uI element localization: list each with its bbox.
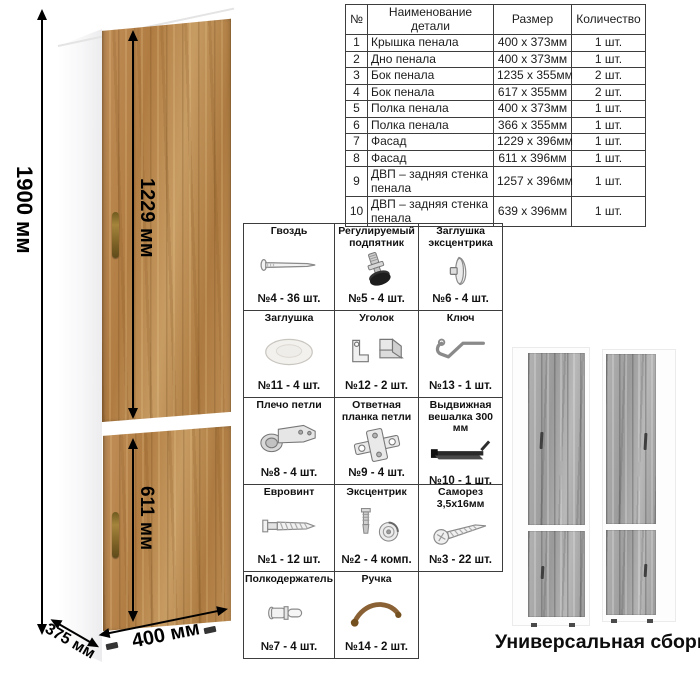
table-cell: 2 — [346, 51, 368, 68]
hardware-qty: №9 - 4 шт. — [348, 467, 404, 479]
hardware-cell-content: Выдвижная вешалка 300 мм№10 - 1 шт. — [419, 398, 502, 482]
lower-door-handle — [112, 512, 119, 558]
table-cell: Крышка пенала — [368, 35, 494, 52]
table-cell: 1 шт. — [572, 197, 646, 227]
hardware-cell-content: Ключ№13 - 1 шт. — [419, 311, 502, 395]
table-cell: 2 шт. — [572, 84, 646, 101]
hardware-title: Регулируемый подпятник — [336, 226, 417, 249]
hardware-cell: Эксцентрик№2 - 4 комп. — [335, 485, 419, 572]
hardware-row: Заглушка№11 - 4 шт.Уголок№12 - 2 шт.Ключ… — [244, 311, 503, 398]
lower-door-dimension-line — [132, 447, 134, 613]
table-cell: 1 шт. — [572, 117, 646, 134]
hardware-qty: №5 - 4 шт. — [348, 293, 404, 305]
upper-door-arrow-bottom — [128, 408, 138, 419]
table-row: 4Бок пенала617 х 355мм2 шт. — [346, 84, 646, 101]
table-cell: 6 — [346, 117, 368, 134]
hardware-title: Полкодержатель — [245, 574, 333, 586]
table-row: 8Фасад611 х 396мм1 шт. — [346, 150, 646, 167]
cam-lock-icon — [345, 499, 409, 555]
table-cell: 8 — [346, 150, 368, 167]
table-row: 3Бок пенала1235 х 355мм2 шт. — [346, 68, 646, 85]
table-cell: 1 — [346, 35, 368, 52]
mini-cabinet-foot — [569, 623, 575, 627]
upper-door-dimension-line — [132, 39, 134, 409]
hardware-cell-content: Заглушка№11 - 4 шт. — [244, 311, 334, 395]
hardware-cell: Плечо петли№8 - 4 шт. — [244, 398, 335, 485]
mini-cabinet-left — [512, 347, 590, 626]
hardware-qty: №1 - 12 шт. — [258, 554, 321, 566]
table-cell: 1235 х 355мм — [494, 68, 572, 85]
table-row: 7Фасад1229 х 396мм1 шт. — [346, 134, 646, 151]
self-tapping-screw-icon — [429, 510, 493, 554]
mini-upper-door — [528, 353, 585, 525]
table-cell: 9 — [346, 167, 368, 197]
table-cell: Полка пенала — [368, 117, 494, 134]
hardware-title: Уголок — [359, 313, 394, 325]
hardware-qty: №7 - 4 шт. — [261, 641, 317, 653]
header-number: № — [346, 5, 368, 35]
table-cell: 1 шт. — [572, 134, 646, 151]
header-quantity: Количество — [572, 5, 646, 35]
hardware-cell: Полкодержатель№7 - 4 шт. — [244, 572, 335, 659]
hardware-cell-content: Регулируемый подпятник№5 - 4 шт. — [335, 224, 418, 308]
table-cell: 1 шт. — [572, 167, 646, 197]
table-row: 5Полка пенала400 х 373мм1 шт. — [346, 101, 646, 118]
hardware-title: Выдвижная вешалка 300 мм — [420, 400, 501, 435]
hardware-cell: Ручка№14 - 2 шт. — [335, 572, 419, 659]
hardware-title: Саморез 3,5х16мм — [420, 487, 501, 510]
hardware-cell-content: Ответная планка петли№9 - 4 шт. — [335, 398, 418, 482]
hardware-cell: Гвоздь№4 - 36 шт. — [244, 224, 335, 311]
hardware-cell: Уголок№12 - 2 шт. — [335, 311, 419, 398]
cabinet-upper-door — [102, 18, 231, 422]
table-row: 2Дно пенала400 х 373мм1 шт. — [346, 51, 646, 68]
key-icon — [429, 325, 493, 381]
cabinet-lower-door — [103, 426, 231, 631]
hardware-cell: Саморез 3,5х16мм№3 - 22 шт. — [419, 485, 503, 572]
table-cell: 400 х 373мм — [494, 51, 572, 68]
cam-cap-icon — [429, 249, 493, 293]
table-row: 10ДВП – задняя стенка пенала639 х 396мм1… — [346, 197, 646, 227]
table-row: 9ДВП – задняя стенка пенала1257 х 396мм1… — [346, 167, 646, 197]
table-cell: 366 х 355мм — [494, 117, 572, 134]
lower-door-arrow-bottom — [128, 611, 138, 622]
hardware-title: Заглушка — [265, 313, 314, 325]
table-cell: 1 шт. — [572, 150, 646, 167]
table-cell: 3 — [346, 68, 368, 85]
hardware-qty: №11 - 4 шт. — [258, 380, 320, 392]
handle-icon — [345, 586, 409, 642]
hardware-cell: Заглушка эксцентрика№6 - 4 шт. — [419, 224, 503, 311]
hardware-grid: Гвоздь№4 - 36 шт.Регулируемый подпятник№… — [243, 223, 503, 659]
hardware-row: Евровинт№1 - 12 шт.Эксцентрик№2 - 4 комп… — [244, 485, 503, 572]
lower-door-dimension-label: 611 мм — [135, 486, 157, 550]
table-cell: ДВП – задняя стенка пенала — [368, 167, 494, 197]
mini-cabinet-foot — [611, 619, 617, 623]
hardware-title: Ручка — [362, 574, 392, 586]
hardware-qty: №12 - 2 шт. — [345, 380, 408, 392]
header-size: Размер — [494, 5, 572, 35]
hardware-qty: №8 - 4 шт. — [261, 467, 317, 479]
corner-bracket-icon — [345, 325, 409, 381]
hardware-cell-content: Евровинт№1 - 12 шт. — [244, 485, 334, 569]
table-cell: 639 х 396мм — [494, 197, 572, 227]
hardware-row: Гвоздь№4 - 36 шт.Регулируемый подпятник№… — [244, 224, 503, 311]
cabinet-illustration: 1900 мм 1229 мм 611 мм 400 мм 375 мм — [0, 0, 245, 683]
table-cell: 1 шт. — [572, 35, 646, 52]
hardware-cell: Ответная планка петли№9 - 4 шт. — [335, 398, 419, 485]
parts-table-header-row: № Наименование детали Размер Количество — [346, 5, 646, 35]
hardware-cell-content: Ручка№14 - 2 шт. — [335, 572, 418, 656]
mini-cabinet-right — [602, 349, 676, 622]
mini-lower-door — [528, 531, 585, 617]
upper-door-dimension-label: 1229 мм — [135, 178, 158, 258]
hardware-qty: №14 - 2 шт. — [345, 641, 408, 653]
table-cell: Бок пенала — [368, 68, 494, 85]
mini-cabinet-foot — [531, 623, 537, 627]
hinge-arm-icon — [257, 412, 321, 468]
pullout-hanger-icon — [429, 435, 493, 475]
hardware-cell: Выдвижная вешалка 300 мм№10 - 1 шт. — [419, 398, 503, 485]
hardware-cell: Регулируемый подпятник№5 - 4 шт. — [335, 224, 419, 311]
shelf-pin-icon — [257, 586, 321, 642]
hardware-cell-empty — [419, 572, 503, 659]
table-cell: 400 х 373мм — [494, 35, 572, 52]
parts-table: № Наименование детали Размер Количество … — [345, 4, 646, 227]
universal-assembly-illustration: Универсальная сборка. — [495, 340, 700, 670]
hardware-qty: №10 - 1 шт. — [429, 475, 492, 487]
hardware-qty: №2 - 4 комп. — [341, 554, 411, 566]
hardware-title: Ответная планка петли — [336, 400, 417, 423]
table-cell: Фасад — [368, 134, 494, 151]
table-cell: 7 — [346, 134, 368, 151]
mini-lower-door — [606, 530, 656, 615]
hardware-title: Заглушка эксцентрика — [420, 226, 501, 249]
table-cell: Бок пенала — [368, 84, 494, 101]
table-cell: Полка пенала — [368, 101, 494, 118]
hardware-qty: №4 - 36 шт. — [258, 293, 321, 305]
hardware-cell-content: Полкодержатель№7 - 4 шт. — [244, 572, 334, 656]
table-cell: 1257 х 396мм — [494, 167, 572, 197]
hardware-row: Плечо петли№8 - 4 шт.Ответная планка пет… — [244, 398, 503, 485]
adjustable-foot-icon — [345, 249, 409, 293]
table-cell: 617 х 355мм — [494, 84, 572, 101]
table-cell: 611 х 396мм — [494, 150, 572, 167]
table-cell: 1 шт. — [572, 101, 646, 118]
hardware-cell-content: Заглушка эксцентрика№6 - 4 шт. — [419, 224, 502, 308]
table-cell: ДВП – задняя стенка пенала — [368, 197, 494, 227]
hardware-cell: Ключ№13 - 1 шт. — [419, 311, 503, 398]
hardware-qty: №6 - 4 шт. — [432, 293, 488, 305]
table-cell: 5 — [346, 101, 368, 118]
hardware-title: Эксцентрик — [346, 487, 406, 499]
hardware-cell-content: Плечо петли№8 - 4 шт. — [244, 398, 334, 482]
table-cell: Дно пенала — [368, 51, 494, 68]
confirmat-screw-icon — [257, 499, 321, 555]
table-cell: 4 — [346, 84, 368, 101]
nail-icon — [257, 238, 321, 294]
hinge-plate-icon — [345, 423, 409, 467]
hardware-cell: Заглушка№11 - 4 шт. — [244, 311, 335, 398]
hardware-cell: Евровинт№1 - 12 шт. — [244, 485, 335, 572]
hardware-title: Евровинт — [264, 487, 315, 499]
hardware-title: Ключ — [447, 313, 475, 325]
hardware-qty: №13 - 1 шт. — [429, 380, 492, 392]
hardware-cell-content: Уголок№12 - 2 шт. — [335, 311, 418, 395]
hardware-cell-content: Гвоздь№4 - 36 шт. — [244, 224, 334, 308]
mini-cabinet-foot — [647, 619, 653, 623]
height-dimension-line — [41, 18, 43, 626]
header-part-name: Наименование детали — [368, 5, 494, 35]
table-cell: 10 — [346, 197, 368, 227]
universal-assembly-caption: Универсальная сборка. — [495, 631, 700, 654]
hardware-cell-content: Саморез 3,5х16мм№3 - 22 шт. — [419, 485, 502, 569]
table-cell: 2 шт. — [572, 68, 646, 85]
table-cell: 1229 х 396мм — [494, 134, 572, 151]
hardware-row: Полкодержатель№7 - 4 шт.Ручка№14 - 2 шт. — [244, 572, 503, 659]
table-cell: 1 шт. — [572, 51, 646, 68]
hardware-title: Плечо петли — [256, 400, 321, 412]
hardware-title: Гвоздь — [271, 226, 308, 238]
upper-door-handle — [112, 212, 119, 258]
table-cell: Фасад — [368, 150, 494, 167]
cabinet-side-panel — [58, 29, 102, 662]
hardware-cell-content: Эксцентрик№2 - 4 комп. — [335, 485, 418, 569]
table-row: 1Крышка пенала400 х 373мм1 шт. — [346, 35, 646, 52]
table-cell: 400 х 373мм — [494, 101, 572, 118]
cap-icon — [257, 325, 321, 381]
mini-upper-door — [606, 354, 656, 524]
table-row: 6Полка пенала366 х 355мм1 шт. — [346, 117, 646, 134]
height-dimension-label: 1900 мм — [11, 166, 37, 254]
hardware-qty: №3 - 22 шт. — [429, 554, 492, 566]
